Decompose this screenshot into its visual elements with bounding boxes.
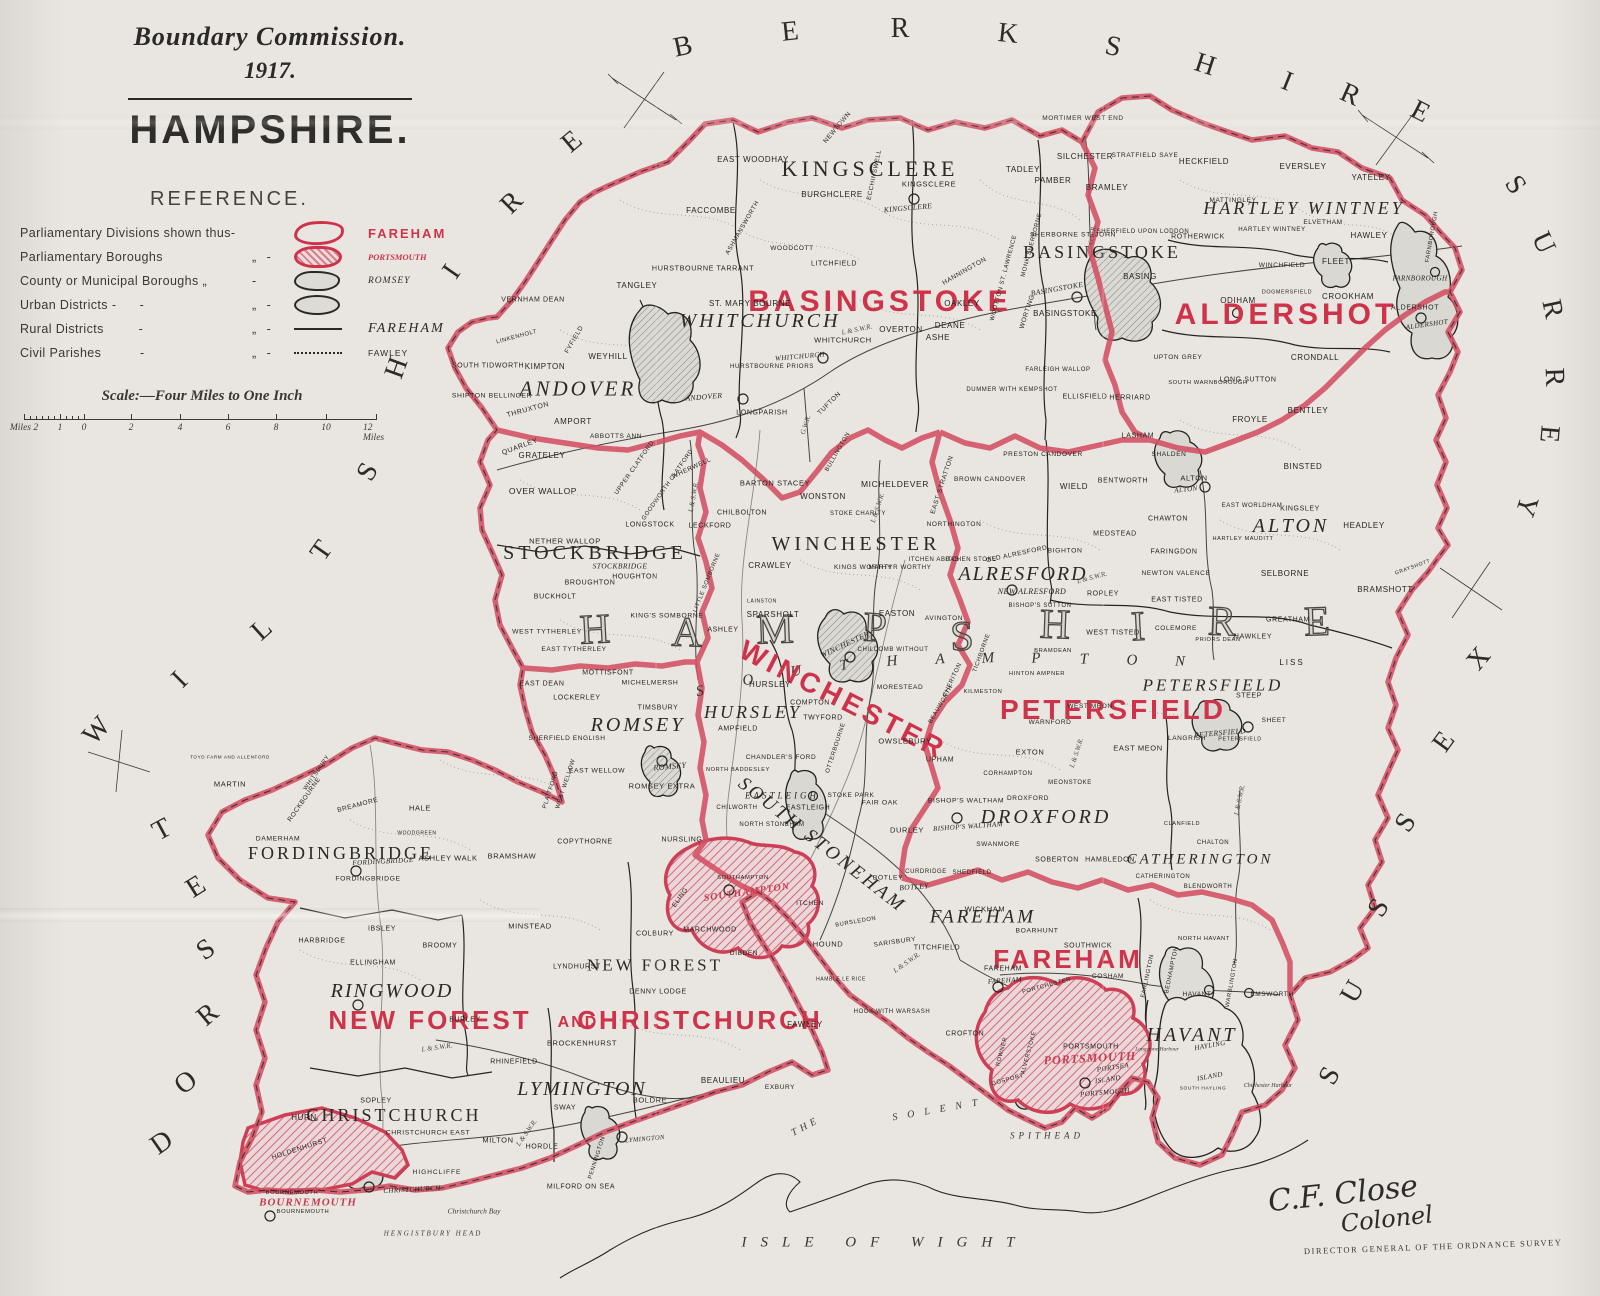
reference-row: Parliamentary Boroughs„ -PORTSMOUTH bbox=[20, 245, 450, 269]
map-label: O bbox=[169, 1066, 202, 1101]
map-label: CLANFIELD bbox=[1164, 822, 1200, 828]
map-label: MICHELDEVER bbox=[861, 480, 929, 489]
scale-tick-label: 6 bbox=[226, 423, 231, 433]
map-label: SOUTHAMPTON bbox=[717, 876, 769, 882]
map-label: BROUGHTON bbox=[565, 580, 616, 587]
reference-row: Urban Districts - -„ - bbox=[20, 293, 450, 317]
map-label: WONSTON bbox=[800, 493, 846, 501]
map-label: EASTON bbox=[879, 610, 915, 618]
scale-bar-graphic: Miles 21024681012 Miles bbox=[22, 411, 402, 437]
map-label: TADLEY bbox=[1006, 166, 1040, 174]
map-label: MARCHWOOD bbox=[683, 927, 737, 934]
map-label: WEST TISTED bbox=[1086, 630, 1139, 637]
map-label: WARBLINGTON bbox=[1226, 958, 1240, 1008]
map-label: BRAMLEY bbox=[1086, 184, 1128, 192]
map-label: WEST MEON bbox=[1067, 704, 1112, 711]
map-label: R bbox=[1536, 297, 1567, 321]
map-label: T bbox=[1080, 652, 1089, 667]
map-label: ALRESFORD bbox=[958, 564, 1087, 584]
map-label: BOTLEY bbox=[873, 876, 903, 883]
map-label: BISHOP'S WALTHAM bbox=[928, 799, 1004, 806]
map-label: E bbox=[556, 126, 587, 158]
map-label: ROMSEY bbox=[653, 762, 687, 773]
map-label: NEWTON VALENCE bbox=[1142, 571, 1211, 578]
map-label: CORHAMPTON bbox=[983, 771, 1032, 777]
legend-symbol-line-icon bbox=[294, 328, 342, 330]
map-label: Langstone Harbour bbox=[1135, 1047, 1179, 1053]
map-label: OVER WALLOP bbox=[509, 487, 577, 496]
scale-minor-tick bbox=[42, 416, 43, 420]
map-label: FARLEIGH WALLOP bbox=[1025, 367, 1090, 373]
reference-heading: REFERENCE. bbox=[150, 188, 450, 211]
map-label: STEEP bbox=[1236, 693, 1262, 700]
map-label: BULLINGTON bbox=[824, 431, 851, 472]
map-label: ANDOVER bbox=[685, 392, 722, 403]
map-label: PRESTON CANDOVER bbox=[1003, 452, 1083, 459]
map-label: U bbox=[1526, 228, 1560, 258]
scale-minor-tick bbox=[48, 416, 49, 420]
reference-row-example: ROMSEY bbox=[360, 276, 410, 286]
map-label: SPARSHOLT bbox=[747, 611, 800, 619]
map-label: BISHOP'S WALTHAM bbox=[933, 821, 1003, 833]
map-label: H bbox=[1191, 49, 1219, 82]
map-label: T bbox=[148, 814, 176, 847]
map-label: E bbox=[1406, 96, 1434, 129]
map-label: T bbox=[839, 658, 849, 674]
map-label: BUCKHOLT bbox=[534, 594, 576, 601]
map-label: ROMSEY EXTRA bbox=[629, 782, 696, 790]
scale-minor-tick bbox=[30, 416, 31, 420]
map-label: Chichester Harbour bbox=[1244, 1083, 1293, 1089]
map-label: HIGHCLIFFE bbox=[413, 1170, 462, 1177]
map-label: HOUND bbox=[813, 940, 844, 948]
county-title: HAMPSHIRE. bbox=[120, 108, 420, 153]
map-label: ALTON bbox=[1253, 516, 1329, 536]
map-label: BASINGSTOKE bbox=[1030, 281, 1084, 298]
scale-minor-tick bbox=[54, 416, 55, 420]
map-label: WICKHAM bbox=[965, 905, 1005, 913]
map-label: T bbox=[306, 536, 339, 566]
map-label: BROCKENHURST bbox=[547, 1039, 617, 1047]
map-label: BIGHTON bbox=[1047, 549, 1082, 556]
map-label: PAMBER bbox=[1035, 177, 1072, 185]
map-label: BRAMSHAW bbox=[488, 852, 537, 860]
map-label: SOLENT bbox=[892, 1097, 988, 1124]
map-label: ELLINGHAM bbox=[350, 960, 396, 967]
map-label: HORDLE bbox=[526, 1144, 559, 1151]
map-label: WHITCHURCH bbox=[814, 336, 872, 344]
map-label: MILFORD ON SEA bbox=[547, 1184, 615, 1191]
map-label: HECKFIELD bbox=[1179, 158, 1229, 166]
map-label: FROYLE bbox=[1232, 416, 1268, 424]
map-label: CHILWORTH bbox=[716, 805, 757, 811]
map-label: BURLEY bbox=[449, 1017, 481, 1024]
map-label: D bbox=[146, 1126, 179, 1161]
map-label: LYNDHURST bbox=[553, 964, 601, 971]
map-label: CROFTON bbox=[946, 1031, 985, 1038]
reference-row-label: Civil Parishes - bbox=[20, 346, 252, 360]
map-label: CHRISTCHURCH bbox=[383, 1185, 441, 1195]
map-label: L & S.W.R. bbox=[421, 1042, 453, 1053]
map-label: PORTSEA bbox=[1096, 1062, 1129, 1073]
scale-tick bbox=[376, 414, 377, 420]
map-label: COSHAM bbox=[1092, 974, 1124, 981]
map-label: BOURNEMOUTH bbox=[266, 1191, 319, 1197]
map-label: MILTON bbox=[482, 1136, 513, 1144]
map-label: PETERSFIELD bbox=[1143, 677, 1284, 694]
map-label: WOODCOTT bbox=[770, 246, 813, 253]
map-label: EAST DEAN bbox=[520, 681, 565, 688]
scale-tick-label: 2 bbox=[129, 423, 134, 433]
reference-row-label: Rural Districts - bbox=[20, 322, 252, 336]
map-label: EASTLEIGH bbox=[786, 805, 831, 812]
map-label: EASTLEIGH bbox=[745, 792, 819, 801]
map-label: BREAMORE bbox=[337, 797, 379, 814]
map-label: L & S.W.R. bbox=[892, 951, 921, 974]
map-label: TIMSBURY bbox=[638, 705, 679, 712]
map-label: HARTLEY WINTNEY bbox=[1238, 227, 1306, 233]
map-label: SHALDEN bbox=[1152, 452, 1187, 459]
map-label: R bbox=[1336, 78, 1364, 111]
map-label: DIBDEN bbox=[730, 951, 758, 958]
map-label: STOCKBRIDGE bbox=[593, 562, 648, 570]
map-label: BROWN CANDOVER bbox=[954, 477, 1026, 484]
map-label: LISS bbox=[1279, 659, 1304, 667]
legend-symbol-red-hatch-icon bbox=[294, 246, 342, 268]
reference-row-ditto: - bbox=[252, 274, 294, 288]
map-label: MORTIMER WEST END bbox=[1042, 116, 1123, 123]
map-label: ASHLEY WALK bbox=[418, 854, 477, 862]
map-label: BENTLEY bbox=[1288, 407, 1329, 415]
map-label: KING'S SOMBORNE bbox=[631, 614, 704, 621]
map-label: KINGSCLERE bbox=[883, 202, 932, 214]
map-label: MEONSTOKE bbox=[1048, 780, 1092, 786]
map-label: NORTH HAVANT bbox=[1178, 937, 1230, 943]
map-label: BENTWORTH bbox=[1098, 478, 1148, 485]
map-label: L & S.W.R. bbox=[1069, 737, 1085, 769]
map-label: TUFTON bbox=[817, 391, 843, 417]
map-label: FYFIELD bbox=[564, 325, 585, 355]
map-sheet: BERKSHIRESURREYSUSSEXWILTSHIREDORSETHAMP… bbox=[0, 0, 1600, 1296]
map-label: WIELD bbox=[1060, 483, 1088, 491]
map-label: FAIR OAK bbox=[862, 801, 898, 808]
map-label: SHERBORNE ST. JOHN bbox=[1030, 233, 1116, 240]
map-label: UPHAM bbox=[926, 757, 954, 764]
reference-row-label: Parliamentary Boroughs bbox=[20, 250, 252, 264]
reference-row-ditto: „ - bbox=[252, 298, 294, 312]
map-label: CRAWLEY bbox=[748, 562, 791, 570]
map-label: I bbox=[1277, 67, 1296, 96]
map-label: CHILCOMB WITHOUT bbox=[858, 647, 929, 653]
map-label: MEDSTEAD bbox=[1093, 531, 1137, 538]
map-label: LONG SUTTON bbox=[1219, 377, 1276, 384]
map-label: LITCHFIELD bbox=[811, 261, 857, 268]
map-label: L & S.W.R. bbox=[1233, 784, 1246, 816]
map-label: R bbox=[891, 15, 910, 43]
map-label: HERRIARD bbox=[1109, 395, 1150, 402]
map-label: BRAMSHOTT bbox=[1357, 586, 1413, 594]
map-label: HOUGHTON bbox=[612, 574, 658, 581]
map-label: PORTCHESTER bbox=[1022, 978, 1072, 997]
map-label: GRAYSHOTT bbox=[1395, 559, 1432, 577]
map-label: BEAULIEU bbox=[701, 1077, 745, 1085]
map-label: HURSLEY bbox=[749, 681, 791, 689]
map-label: LYMINGTON bbox=[517, 1079, 647, 1099]
map-label: ABBOTTS ANN bbox=[590, 434, 642, 441]
map-label: BASINGSTOKE bbox=[1023, 243, 1181, 261]
scale-tick bbox=[326, 414, 327, 420]
map-label: FARINGDON bbox=[1150, 549, 1197, 556]
map-label: S bbox=[1390, 809, 1422, 838]
map-label: ASHE bbox=[926, 334, 950, 342]
map-label: IBSLEY bbox=[368, 926, 396, 933]
scale-tick-label: 8 bbox=[274, 423, 279, 433]
map-label: LOCKERLEY bbox=[553, 695, 600, 702]
map-year: 1917. bbox=[120, 58, 420, 84]
map-label: FAWLEY bbox=[787, 1021, 823, 1029]
map-label: KINGSLEY bbox=[1280, 506, 1320, 513]
map-label: S bbox=[1499, 171, 1531, 200]
map-label: FORDINGBRIDGE bbox=[335, 877, 400, 884]
map-label: ODIHAM bbox=[1220, 297, 1256, 305]
legend-symbol-urban-icon bbox=[294, 295, 340, 315]
map-label: STOCKBRIDGE bbox=[503, 543, 687, 563]
scale-tick bbox=[228, 414, 229, 420]
map-label: WEYHILL bbox=[588, 353, 627, 361]
map-label: CATHERINGTON bbox=[1127, 853, 1274, 868]
map-label: OAKLEY bbox=[944, 300, 980, 308]
scale-tick-label: 1 bbox=[58, 423, 63, 433]
map-label: COPYTHORNE bbox=[557, 839, 612, 846]
map-label: AVINGTON bbox=[925, 616, 963, 623]
map-label: ALDERSHOT bbox=[1175, 300, 1398, 330]
map-label: ITCHEN bbox=[796, 901, 824, 908]
map-label: THE bbox=[790, 1115, 822, 1138]
map-label: EAST WOODHAY bbox=[717, 156, 789, 164]
map-label: LAINSTON bbox=[747, 600, 777, 605]
map-label: CHRISTCHURCH bbox=[306, 1106, 481, 1124]
map-label: MATTINGLEY bbox=[1209, 198, 1256, 205]
legend-symbol-red-outline-icon bbox=[293, 219, 345, 246]
map-label: WINCHFIELD bbox=[1259, 263, 1305, 270]
map-label: L bbox=[246, 614, 277, 646]
map-label: ISLAND bbox=[1197, 1071, 1224, 1082]
map-label: DEANE bbox=[935, 322, 966, 330]
map-label: L & S.W.R. bbox=[688, 481, 700, 513]
map-label: DURLEY bbox=[890, 826, 924, 834]
map-label: DUMMER WITH KEMPSHOT bbox=[966, 387, 1057, 393]
map-label: E bbox=[181, 871, 210, 904]
map-label: SWAY bbox=[554, 1105, 576, 1112]
map-label: BURGHCLERE bbox=[801, 191, 863, 199]
map-label: SOUTH TIDWORTH bbox=[452, 363, 524, 370]
map-label: OVERTON bbox=[879, 326, 922, 334]
map-label: SOUTHWICK bbox=[1064, 943, 1112, 950]
map-label: HAVANT bbox=[1182, 992, 1211, 999]
map-label: GREATHAM bbox=[1266, 617, 1310, 624]
map-label: ALDERSHOT bbox=[1405, 319, 1448, 332]
map-label: CHALTON bbox=[1197, 840, 1229, 846]
map-label: PENNINGTON bbox=[588, 1136, 607, 1180]
map-label: LANGRISH bbox=[1168, 736, 1206, 743]
map-label: ISLAND bbox=[1095, 1075, 1122, 1086]
scale-tick bbox=[276, 414, 277, 420]
scale-tick bbox=[24, 414, 25, 420]
map-label: BROOMY bbox=[423, 943, 458, 950]
map-label: AMPORT bbox=[554, 418, 592, 426]
map-label: WHITCHURCH bbox=[679, 311, 840, 331]
map-label: OLD ALRESFORD bbox=[986, 545, 1048, 564]
map-label: CROOKHAM bbox=[1322, 293, 1374, 301]
map-label: EMSWORTH bbox=[1250, 992, 1293, 999]
map-label: YATELEY bbox=[1351, 174, 1390, 182]
map-label: FLEET bbox=[1322, 258, 1350, 266]
map-label: HOLDENHURST bbox=[271, 1138, 329, 1162]
map-label: A bbox=[935, 652, 945, 668]
map-label: ST. MARY BOURNE bbox=[709, 300, 791, 308]
map-label: HARTLEY MAUDITT bbox=[1212, 537, 1273, 543]
map-label: U bbox=[1336, 976, 1370, 1008]
map-label: GOSPORT bbox=[991, 1074, 1024, 1088]
map-label: SARISBURY bbox=[873, 937, 916, 949]
map-label: BLENDWORTH bbox=[1184, 884, 1233, 890]
map-label: EVERSLEY bbox=[1279, 163, 1326, 171]
map-label: MOTTISFONT bbox=[582, 670, 634, 677]
map-label: SILCHESTER bbox=[1057, 153, 1113, 161]
map-label: S bbox=[192, 934, 221, 966]
map-label: NETHER WALLOP bbox=[529, 537, 601, 545]
map-label: EAST MEON bbox=[1113, 744, 1162, 752]
map-label: HAWLEY bbox=[1350, 232, 1387, 240]
map-label: COLEMORE bbox=[1155, 626, 1197, 633]
map-label: NORTHINGTON bbox=[927, 522, 982, 529]
map-label: NORTH BADDESLEY bbox=[706, 768, 770, 774]
map-label: E bbox=[780, 17, 800, 47]
map-label: RHINEFIELD bbox=[490, 1059, 538, 1066]
map-label: KILMESTON bbox=[964, 690, 1003, 696]
map-label: WEST TYTHERLEY bbox=[512, 630, 582, 637]
map-label: HURSTBOURNE TARRANT bbox=[652, 264, 754, 271]
map-label: FACCOMBE bbox=[686, 207, 736, 215]
map-label: BISHOP'S SUTTON bbox=[1008, 603, 1071, 609]
map-label: HANNINGTON bbox=[942, 257, 988, 287]
reference-row-label: County or Municipal Boroughs „ bbox=[20, 274, 252, 288]
map-label: EAST TISTED bbox=[1151, 597, 1202, 604]
title-rule bbox=[128, 98, 412, 100]
map-label: L & S.W.R. bbox=[870, 492, 886, 524]
scale-tick bbox=[60, 414, 61, 420]
map-label: SPITHEAD bbox=[1010, 1132, 1084, 1141]
map-label: ELVETHAM bbox=[1303, 220, 1342, 227]
map-label: DAMERHAM bbox=[256, 837, 300, 844]
map-label: STRATFIELD SAYE bbox=[1112, 153, 1179, 160]
map-label: FAREHAM bbox=[984, 966, 1022, 973]
map-label: BOARHUNT bbox=[1016, 929, 1059, 936]
map-label: S bbox=[1102, 32, 1123, 63]
map-label: VERNHAM DEAN bbox=[501, 297, 565, 304]
map-label: DENNY LODGE bbox=[629, 989, 686, 996]
map-label: ALTON bbox=[1174, 485, 1198, 494]
map-label: ELING bbox=[672, 887, 690, 909]
map-label: WINCHESTER bbox=[772, 534, 941, 554]
map-label: CURDRIDGE bbox=[905, 869, 947, 875]
map-label: HEADLEY bbox=[1343, 522, 1385, 530]
map-label: BOURNEMOUTH bbox=[277, 1210, 330, 1216]
map-label: OWSLEBURY bbox=[878, 737, 931, 745]
map-label: R bbox=[192, 998, 224, 1031]
map-label: H bbox=[886, 654, 898, 670]
map-label: LINKENHOLT bbox=[496, 330, 538, 346]
map-label: FARNBOROUGH bbox=[1426, 211, 1441, 263]
map-label: EAST WELLOW bbox=[569, 769, 625, 776]
reference-rows: Parliamentary Divisions shown thus-FAREH… bbox=[20, 221, 450, 365]
map-label: BASING bbox=[1123, 273, 1157, 281]
map-label: BOLDRE bbox=[633, 1096, 667, 1104]
map-label: TOYD FARM AND ALLENFORD bbox=[190, 756, 270, 761]
map-label: WOODGREEN bbox=[397, 832, 436, 837]
reference-row-example: FAWLEY bbox=[360, 348, 408, 358]
map-label: N bbox=[1175, 655, 1185, 670]
map-label: FORDINGBRIDGE bbox=[352, 857, 413, 867]
map-label: ISLE OF WIGHT bbox=[742, 1236, 1029, 1251]
map-label: LECKFORD bbox=[689, 523, 732, 530]
reference-row-example: FAREHAM bbox=[360, 321, 445, 337]
scale-minor-tick bbox=[36, 416, 37, 420]
map-label: GRATELEY bbox=[519, 452, 566, 460]
map-label: B bbox=[671, 31, 695, 62]
map-label: S bbox=[695, 684, 705, 700]
map-label: UPPER CLATFORD bbox=[614, 440, 656, 496]
map-label: DOGMERSFIELD bbox=[1262, 290, 1312, 295]
map-label: EXTON bbox=[1016, 748, 1045, 756]
map-label: OTTERBOURNE bbox=[825, 722, 847, 774]
map-label: LITTLE SOMBORNE bbox=[693, 553, 722, 614]
map-label: CHRISTCHURCH EAST bbox=[386, 1131, 471, 1138]
map-label: HAWKLEY bbox=[1234, 634, 1272, 641]
reference-row: Civil Parishes -„ -FAWLEY bbox=[20, 341, 450, 365]
map-label: CHRISTCHURCH bbox=[577, 1007, 822, 1033]
scale-tick bbox=[84, 414, 85, 420]
map-label: ROMSEY bbox=[591, 715, 686, 735]
map-label: SWANMORE bbox=[976, 842, 1020, 849]
map-label: SELBORNE bbox=[1261, 570, 1309, 578]
map-label: K bbox=[996, 19, 1019, 49]
map-label: E bbox=[1534, 424, 1563, 443]
map-label: HURN bbox=[291, 1114, 317, 1122]
map-label: HINTON AMPNER bbox=[1009, 672, 1065, 678]
legend-symbol-dots-icon bbox=[294, 352, 342, 354]
map-label: Christchurch Bay bbox=[448, 1207, 501, 1215]
map-label: HURSTBOURNE PRIORS bbox=[730, 364, 814, 370]
map-label: TWYFORD bbox=[803, 715, 843, 722]
reference-row-ditto: „ - bbox=[252, 322, 294, 336]
title-block: Boundary Commission. 1917. HAMPSHIRE. bbox=[120, 22, 420, 153]
map-label: NURSLING bbox=[662, 837, 703, 844]
map-label: STOKE PARK bbox=[828, 793, 875, 800]
map-label: MARTYR WORTHY bbox=[869, 565, 932, 571]
map-label: BASINGSTOKE bbox=[1033, 310, 1097, 318]
map-label: EAST STRATTON bbox=[930, 455, 955, 515]
map-label: HAMBLEDON bbox=[1085, 857, 1135, 864]
map-label: MICHELMERSH bbox=[622, 681, 679, 688]
map-label: HOOK WITH WARSASH bbox=[854, 1009, 931, 1015]
map-label: KIMPTON bbox=[525, 363, 566, 371]
map-label: X bbox=[1462, 642, 1496, 675]
scale-minor-tick bbox=[72, 416, 73, 420]
scale-minor-tick bbox=[78, 416, 79, 420]
reference-row: Rural Districts -„ -FAREHAM bbox=[20, 317, 450, 341]
reference-row: Parliamentary Divisions shown thus-FAREH… bbox=[20, 221, 450, 245]
